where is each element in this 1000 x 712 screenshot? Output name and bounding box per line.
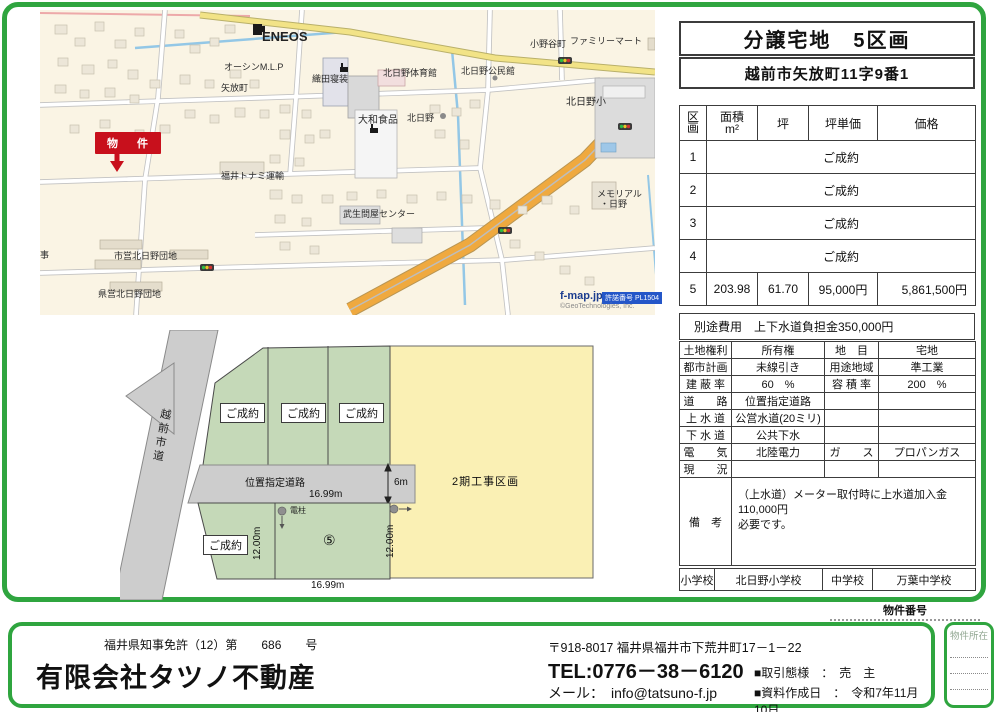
- col-tsubo: 坪: [758, 106, 809, 141]
- remarks-text: （上水道）メーター取付時に上水道加入金110,000円 必要です。: [732, 478, 976, 566]
- label-land-rights: 土地権利: [680, 342, 732, 359]
- label-current-state: 現 況: [680, 461, 732, 478]
- property-location-box: 物件所在: [944, 622, 994, 708]
- designated-road: [188, 465, 415, 503]
- label-city-planning: 都市計画: [680, 359, 732, 376]
- hall-icon: [493, 76, 498, 81]
- property-address: 越前市矢放町11字9番1: [679, 57, 975, 89]
- flyer-title: 分譲宅地 5区画: [679, 21, 975, 56]
- school-pool: [601, 143, 616, 152]
- memorial-building: [592, 182, 616, 209]
- tonya-building: [340, 206, 380, 224]
- flyer-page: ENEOSオーシンM.L.P織田寝装矢放町北日野体育館北日野公民館小野谷町ファミ…: [0, 0, 1000, 712]
- label-coverage-ratio: 建 蔽 率: [680, 376, 732, 393]
- station-icon: [440, 113, 446, 119]
- plot5-unit-price: 95,000円: [809, 273, 878, 306]
- plot5-tsubo: 61.70: [758, 273, 809, 306]
- price-row-5: 5 203.98 61.70 95,000円 5,861,500円: [680, 273, 976, 306]
- gym-building: [378, 70, 405, 86]
- col-plot: 区画: [680, 106, 707, 141]
- site-plan: [120, 330, 670, 600]
- school-table: 小学校 北日野小学校 中学校 万葉中学校: [679, 568, 976, 591]
- status-sold: ご成約: [707, 174, 976, 207]
- oshin-building: [323, 58, 348, 106]
- company-footer: 福井県知事免許（12）第 686 号 有限会社タツノ不動産 〒918-8017 …: [8, 622, 935, 708]
- plot5-area: 203.98: [707, 273, 758, 306]
- plots-bottom: [198, 503, 390, 579]
- price-table: 区画 面積m² 坪 坪単価 価格 1 ご成約 2 ご成約 3 ご成約 4 ご成約…: [679, 105, 976, 306]
- details-table: 土地権利所有権地 目宅地 都市計画未線引き用途地域準工業 建 蔽 率60 %容 …: [679, 341, 976, 566]
- property-location-label: 物件所在: [947, 628, 991, 642]
- price-row-3: 3 ご成約: [680, 207, 976, 240]
- price-row-4: 4 ご成約: [680, 240, 976, 273]
- price-row-1: 1 ご成約: [680, 141, 976, 174]
- fill-in-line: [950, 674, 988, 690]
- company-email: メール： info@tatsuno-f.jp: [548, 683, 717, 703]
- license-number: 福井県知事免許（12）第 686 号: [104, 636, 317, 653]
- label-junior-high: 中学校: [823, 569, 873, 591]
- deal-type: ■取引態様 ： 売 主: [754, 664, 875, 681]
- company-tel: TEL:0776－38－6120: [548, 655, 744, 684]
- price-row-2: 2 ご成約: [680, 174, 976, 207]
- fill-in-line: [950, 642, 988, 658]
- property-number-field: 物件番号: [830, 602, 980, 621]
- plot5-price: 5,861,500円: [878, 273, 976, 306]
- document-date: ■資料作成日 ： 令和7年11月10日: [754, 684, 931, 712]
- col-area: 面積m²: [707, 106, 758, 141]
- yamato-building: [355, 110, 397, 178]
- label-sewage: 下 水 道: [680, 427, 732, 444]
- phase2-area: [390, 346, 593, 578]
- fill-in-line: [950, 658, 988, 674]
- label-water-supply: 上 水 道: [680, 410, 732, 427]
- label-remarks: 備 考: [680, 478, 732, 566]
- extra-fee-note: 別途費用 上下水道負担金350,000円: [679, 313, 975, 340]
- label-road: 道 路: [680, 393, 732, 410]
- col-unit-price: 坪単価: [809, 106, 878, 141]
- price-header-row: 区画 面積m² 坪 坪単価 価格: [680, 106, 976, 141]
- company-name: 有限会社タツノ不動産: [36, 656, 316, 695]
- label-elementary: 小学校: [680, 569, 715, 591]
- label-electricity: 電 気: [680, 444, 732, 461]
- location-map: [40, 10, 655, 315]
- status-sold: ご成約: [707, 141, 976, 174]
- status-sold: ご成約: [707, 240, 976, 273]
- tonami-building: [220, 162, 264, 174]
- status-sold: ご成約: [707, 207, 976, 240]
- col-price: 価格: [878, 106, 976, 141]
- elementary-school: 北日野小学校: [715, 569, 823, 591]
- plots-top: [203, 346, 390, 465]
- company-address: 〒918-8017 福井県福井市下荒井町17－1－22: [548, 637, 802, 656]
- junior-high-school: 万葉中学校: [873, 569, 976, 591]
